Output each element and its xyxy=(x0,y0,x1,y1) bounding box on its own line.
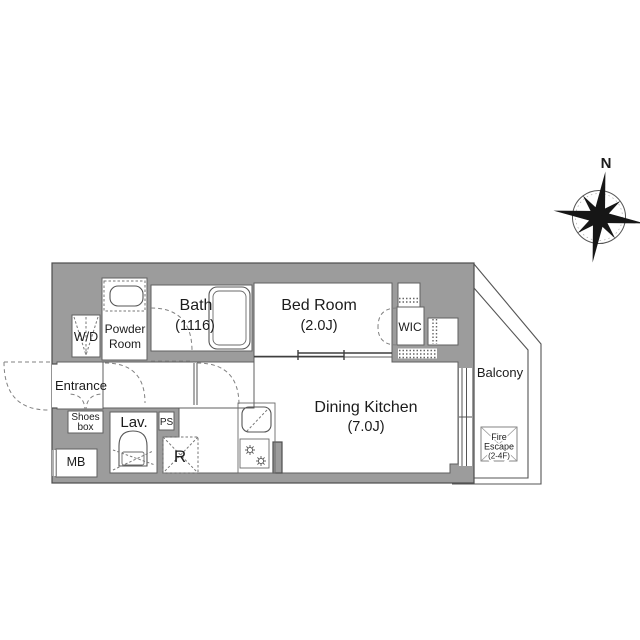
floor-plan-canvas: Fire Escape (2-4F) N Bath (1116) Bed xyxy=(0,0,640,640)
room-floors xyxy=(56,278,458,477)
dining-kitchen-size-label: (7.0J) xyxy=(347,419,384,435)
wic-hatch-strip xyxy=(398,349,437,359)
bath-size-label: (1116) xyxy=(175,318,215,334)
entrance-door-arc xyxy=(4,362,48,410)
shoes-box-label-line2: box xyxy=(77,422,93,433)
entrance-label: Entrance xyxy=(55,378,107,393)
powder-room-label-line1: Powder xyxy=(105,322,146,336)
powder-room-label-line2: Room xyxy=(109,337,141,351)
fire-escape-label-line3: (2-4F) xyxy=(488,452,510,461)
wic-label: WIC xyxy=(398,320,422,334)
pipe-space-label: PS xyxy=(160,417,174,428)
kitchen-wall-stub xyxy=(273,442,282,473)
corridor-floor xyxy=(103,362,254,408)
lavatory-label: Lav. xyxy=(120,414,147,431)
bedroom-closet xyxy=(398,283,420,307)
bath-label: Bath xyxy=(180,297,213,314)
fire-escape-label-line2: Escape xyxy=(484,442,514,452)
fire-escape-hatch: Fire Escape (2-4F) xyxy=(481,427,517,461)
meter-box-label: MB xyxy=(67,455,86,469)
bedroom-label: Bed Room xyxy=(281,297,357,314)
compass-north-label: N xyxy=(601,155,612,172)
bedroom-size-label: (2.0J) xyxy=(300,318,337,334)
washer-dryer-label: W/D xyxy=(74,330,98,344)
balcony-label: Balcony xyxy=(477,365,524,380)
fire-escape-label-line1: Fire xyxy=(491,432,507,442)
compass-rose-icon: N xyxy=(547,155,640,269)
refrigerator-label: R xyxy=(174,447,186,466)
floor-plan-page: Fire Escape (2-4F) N Bath (1116) Bed xyxy=(0,0,640,640)
dining-kitchen-label: Dining Kitchen xyxy=(314,399,417,416)
